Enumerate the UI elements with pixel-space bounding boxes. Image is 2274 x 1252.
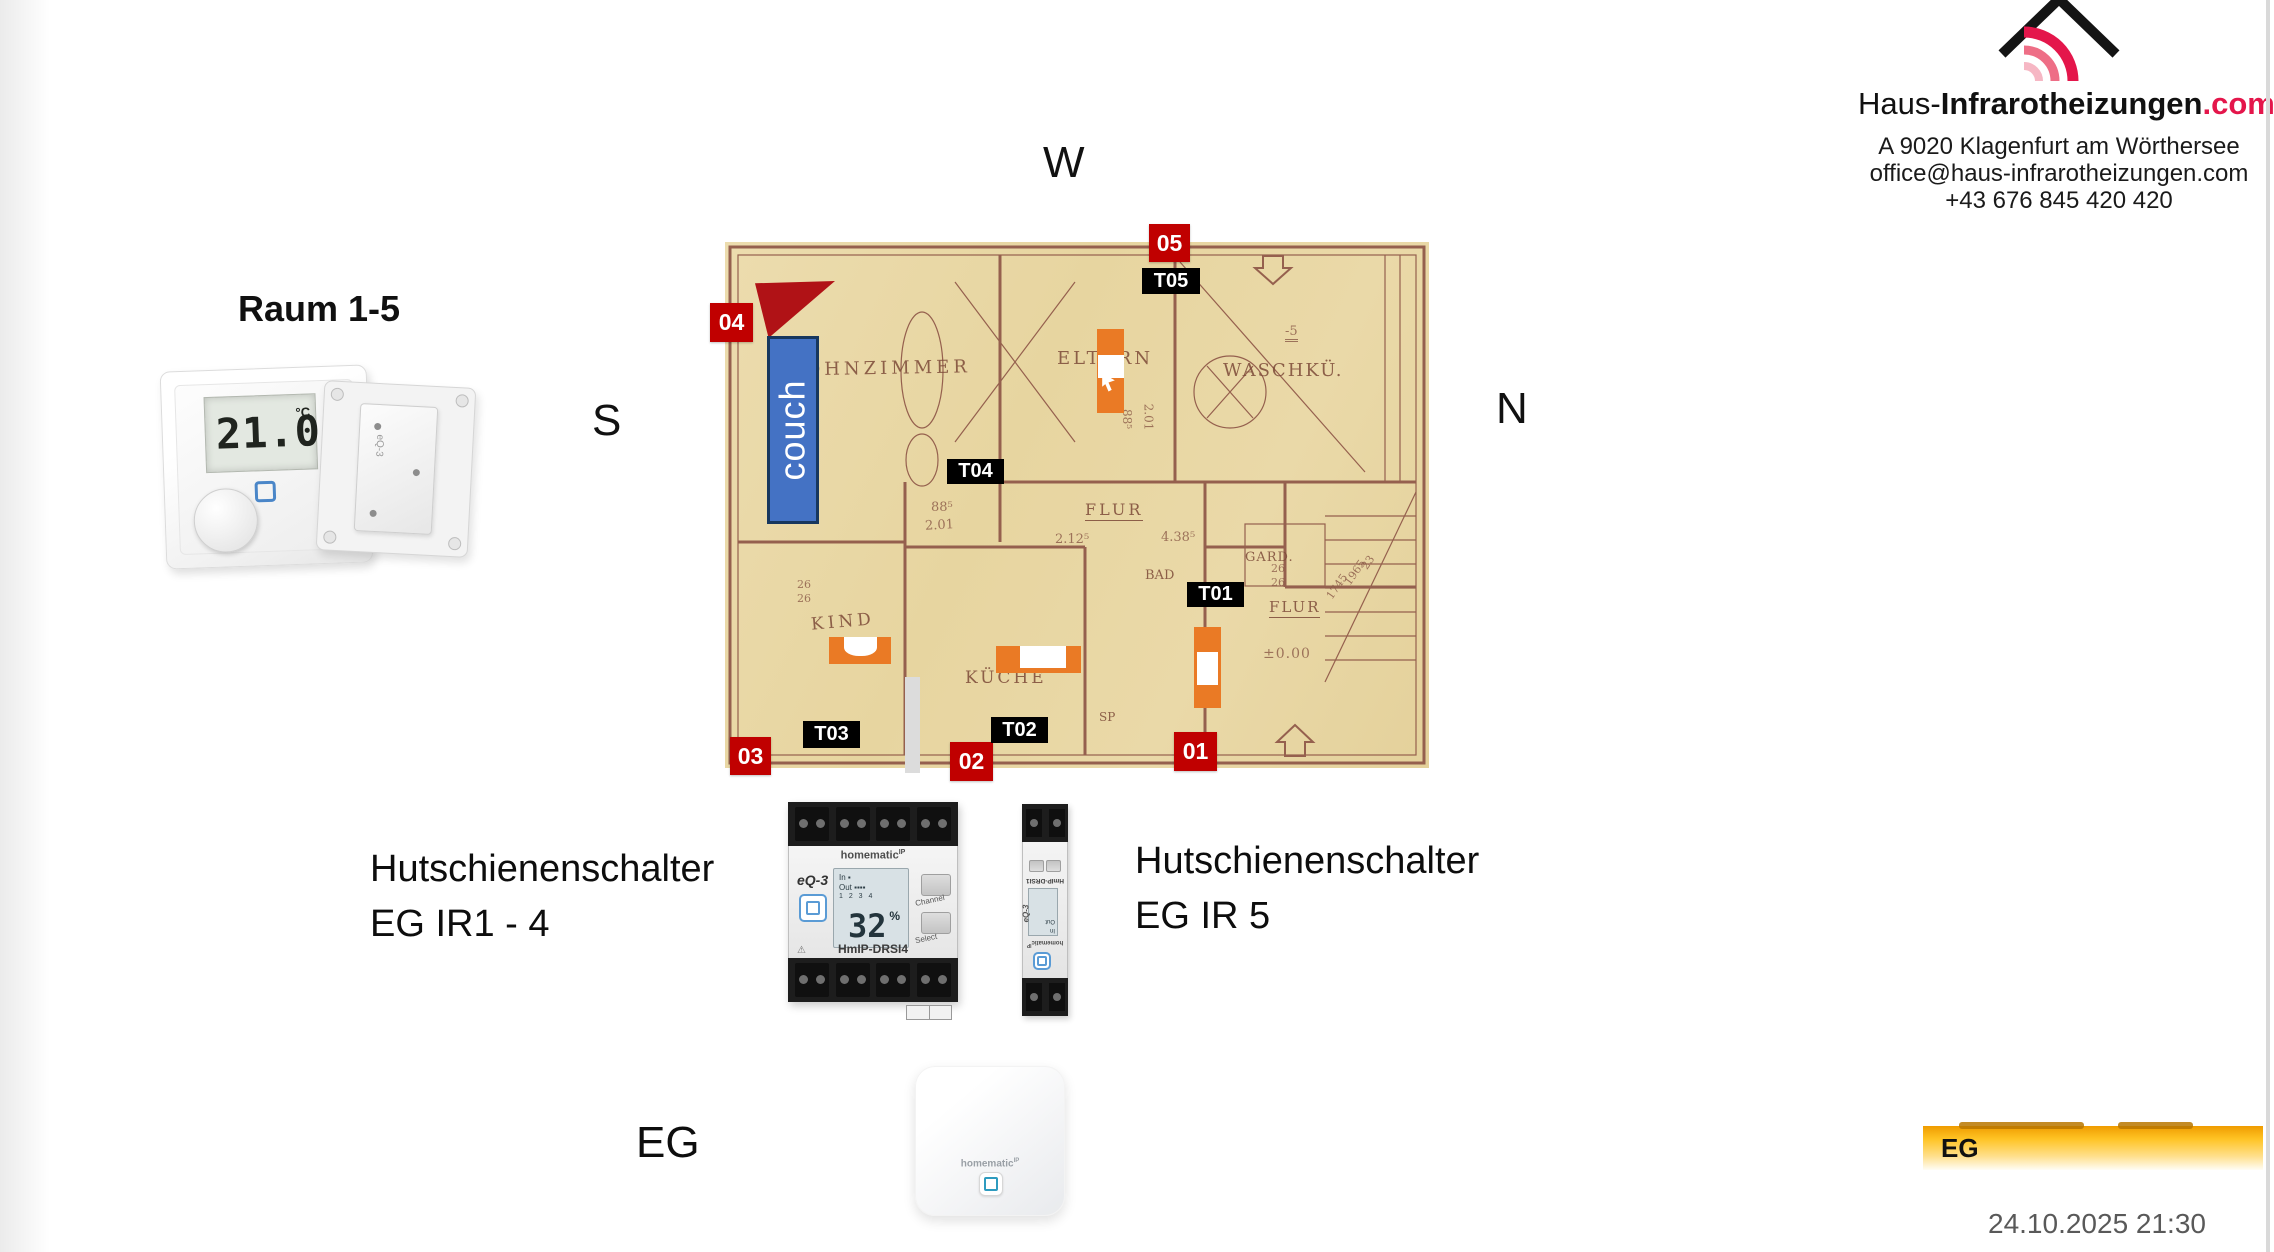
room-label: FLUR [1085,500,1143,521]
brand-text: homematic [1032,939,1064,945]
room-label: BAD [1145,568,1174,583]
plan-annotation: 2.01 [925,517,955,533]
terminal [917,963,951,997]
device-model: HmIP-DRSI4 [789,942,957,956]
terminal [1026,983,1042,1011]
out-label: Out [839,883,852,892]
mouse-cursor-icon [1100,373,1117,392]
thermostat-marker-t05: T05 [1142,268,1200,294]
address-line: A 9020 Klagenfurt am Wörthersee [1858,133,2260,160]
access-point-photo: homematicIP [915,1066,1065,1216]
position-marker-01: 01 [1174,732,1217,771]
module-dot [369,510,376,517]
room-label: FLUR [1269,598,1320,618]
brand-bold: Infrarotheizungen [1941,86,2203,121]
insert-module [354,403,439,535]
plan-annotation: ±0.00 [1263,646,1311,662]
compass-north: N [1496,384,1528,434]
panel-highlight [1197,652,1218,685]
panel-highlight [1020,646,1066,668]
din-label-left-line1: Hutschienenschalter [370,842,714,897]
brand-tld: .com [2202,86,2274,121]
device-model: HmIP-DRSI1 [1023,877,1067,884]
legend-label: EG [1941,1133,1979,1164]
out-label: Out [1029,917,1057,926]
plan-annotation: -5 [1285,324,1298,342]
eq3-logo: eQ-3 [1021,905,1030,923]
company-address: A 9020 Klagenfurt am Wörthersee office@h… [1858,133,2260,214]
plan-annotation: 4.38⁵ [1161,530,1195,545]
email-line: office@haus-infrarotheizungen.com [1858,160,2260,187]
brand-sup: IP [899,849,906,856]
compass-west: W [1043,138,1085,188]
terminal [876,807,910,841]
display-out-row: Out ▪▪▪▪ [839,883,903,893]
din-label-right: Hutschienenschalter EG IR 5 [1135,834,1479,944]
channel-button [1046,860,1061,872]
right-edge-line [2266,0,2270,1252]
plan-annotation: 88⁵ [931,500,953,515]
terminal [836,963,870,997]
company-logo: Haus-Infrarotheizungen.com A 9020 Klagen… [1858,0,2260,220]
thermostat-marker-t04: T04 [947,459,1004,484]
timestamp: 24.10.2025 21:30 [1988,1208,2228,1240]
brand-prefix: Haus- [1858,86,1941,121]
device-brand: homematicIP [1023,939,1067,948]
terminal [876,963,910,997]
plan-annotation: 2.12⁵ [1055,532,1089,547]
thermostat-marker-t03: T03 [803,721,860,748]
position-marker-03: 03 [730,737,771,775]
phone-line: +43 676 845 420 420 [1858,187,2260,214]
display-unit: % [889,909,900,923]
device-brand: homematicIP [789,849,957,862]
channel-button [921,874,951,896]
heater-panel-bad [1194,627,1221,708]
terminal [1049,983,1065,1011]
plan-annotation: 26 [1271,562,1285,575]
eq3-logo: eQ-3 [797,872,828,888]
compass-south: S [592,396,621,446]
access-point-button [979,1172,1003,1196]
panel-highlight [844,637,877,656]
eq3-mark: eQ-3 [373,434,385,457]
brand-text: homematic [961,1158,1014,1169]
select-button [1029,860,1044,872]
access-point-led [984,1177,998,1191]
device-display: In Out [1028,888,1058,936]
plan-annotation: 26 [797,578,811,591]
room-label: SP [1099,710,1115,724]
brand-sup: IP [1014,1158,1020,1164]
system-button [1033,952,1051,970]
left-edge-shading [0,0,50,1252]
terminal-block-top [788,802,958,846]
position-marker-05: 05 [1149,224,1190,262]
display-channels: 1 2 3 4 [839,893,903,900]
terminal-block-top [1022,804,1068,842]
in-label: In [1029,926,1057,935]
heater-panel-kind [829,637,891,664]
device-display: In ▪ Out ▪▪▪▪ 1 2 3 4 32 % [833,868,909,948]
thermostat-unit: °C [295,404,310,420]
floor-plan-walls [725,242,1429,768]
din-label-left-line2: EG IR1 - 4 [370,897,714,952]
slide: Haus-Infrarotheizungen.com A 9020 Klagen… [0,0,2274,1252]
room-label: WASCHKÜ. [1223,360,1343,381]
thermostat-marker-t02: T02 [991,717,1048,743]
gray-bar-marker [905,677,920,773]
room-label: GARD. [1245,550,1294,565]
brand-name: Haus-Infrarotheizungen.com [1858,86,2260,122]
terminal [917,807,951,841]
couch-label: couch [772,379,814,480]
plan-annotation: 26 [1271,576,1285,589]
position-marker-02: 02 [950,742,993,781]
inverted-face: homematicIP In Out eQ-3 HmIP-DRSI1 [1023,842,1067,978]
module-dot [374,423,381,430]
screw-hole [448,537,462,551]
in-label: In [839,873,846,882]
screw-hole [323,530,337,544]
terminal [1049,809,1065,837]
channel-button-label: Channel [914,893,945,908]
thermostat-marker-t01: T01 [1187,582,1244,607]
terminal [836,807,870,841]
screw-hole [330,387,344,401]
highlighter-smudge [1959,1122,2084,1129]
terminal [1026,809,1042,837]
device-body: homematicIP eQ-3 In ▪ Out ▪▪▪▪ 1 2 3 4 3… [788,846,958,958]
rooms-title: Raum 1-5 [238,288,400,330]
terminal [795,807,829,841]
floor-plan: WOHNZIMMER ELTERN WASCHKÜ. KIND KÜCHE FL… [725,242,1429,768]
terminal-block-bottom [1022,978,1068,1016]
plan-annotation: 2.01 [1141,404,1155,431]
din-label-right-line1: Hutschienenschalter [1135,834,1479,889]
brand-text: homematic [841,850,899,862]
thermostat-lcd: 21.0 °C [204,393,319,473]
terminal [795,963,829,997]
din-label-left: Hutschienenschalter EG IR1 - 4 [370,842,714,952]
din-rail-switch-1ch-photo: homematicIP In Out eQ-3 HmIP-DRSI1 [1022,804,1068,1016]
highlighter-smudge [2118,1122,2193,1129]
rail-clip [906,1005,952,1020]
terminal-block-bottom [788,958,958,1002]
brand-sup: IP [1027,942,1032,948]
legend-bar: EG [1923,1126,2263,1170]
flush-mount-insert-photo: eQ-3 [316,380,477,558]
heater-panel-eltern [1097,329,1124,413]
module-dot [413,469,420,476]
couch-marker: couch [767,336,819,524]
house-wifi-logo-icon [1996,0,2126,84]
display-value: 32 [848,907,887,945]
system-button-glyph [806,901,820,915]
display-in-row: In ▪ [839,873,903,883]
system-button [799,894,827,922]
screw-hole [455,394,469,408]
floor-level-label: EG [636,1118,700,1168]
din-rail-switch-4ch-photo: homematicIP eQ-3 In ▪ Out ▪▪▪▪ 1 2 3 4 3… [788,802,958,1002]
thermostat-system-button [254,481,276,503]
access-point-brand: homematicIP [915,1158,1065,1169]
system-button-glyph [1037,956,1047,966]
plan-annotation: 26 [797,592,811,605]
heater-panel-kueche [996,646,1081,673]
position-marker-04: 04 [710,303,753,342]
device-body: homematicIP In Out eQ-3 HmIP-DRSI1 [1022,842,1068,978]
din-label-right-line2: EG IR 5 [1135,889,1479,944]
